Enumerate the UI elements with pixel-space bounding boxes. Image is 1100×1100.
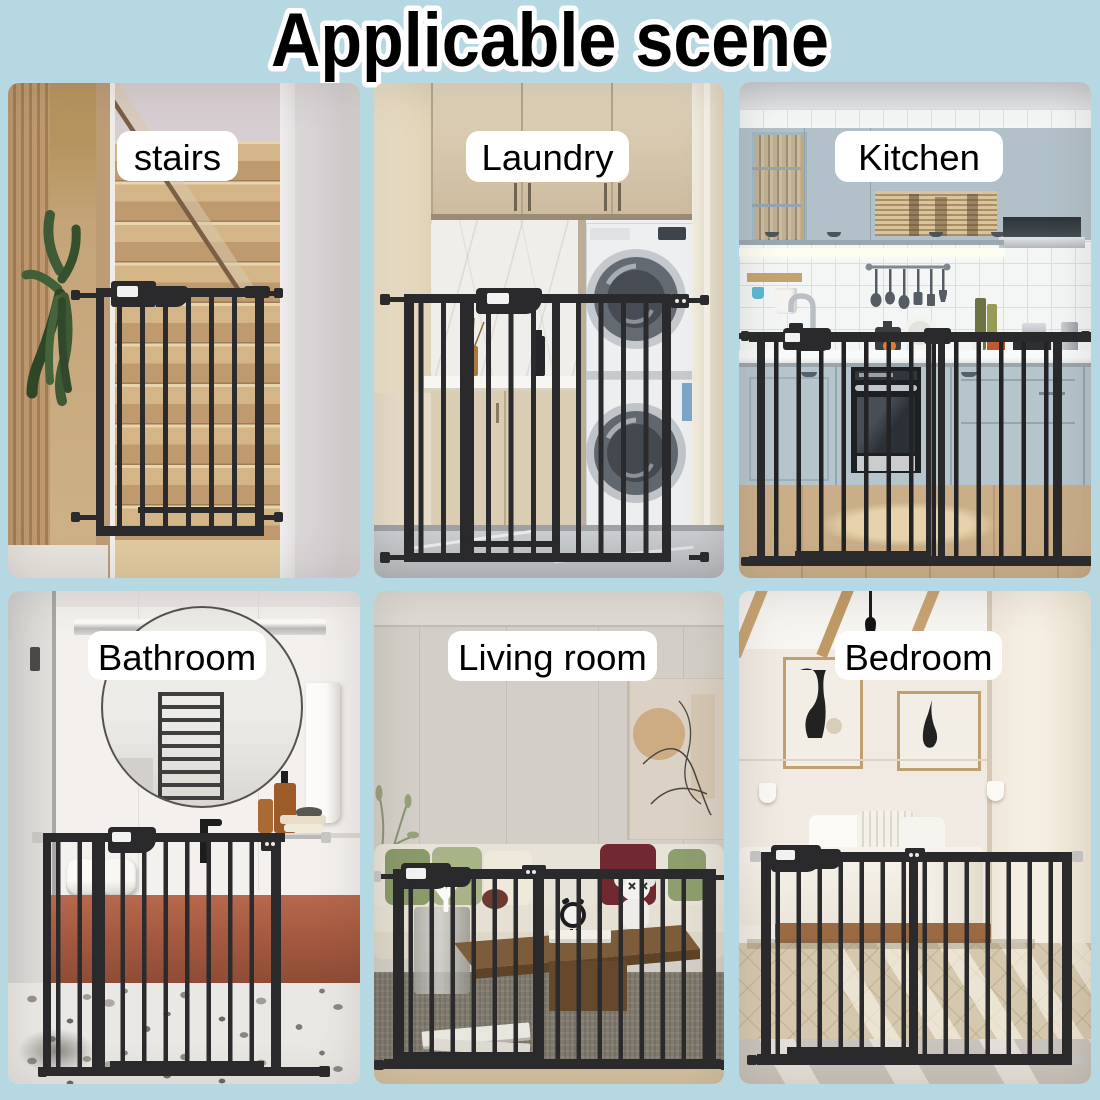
svg-text:Applicable scene: Applicable scene — [271, 0, 829, 83]
